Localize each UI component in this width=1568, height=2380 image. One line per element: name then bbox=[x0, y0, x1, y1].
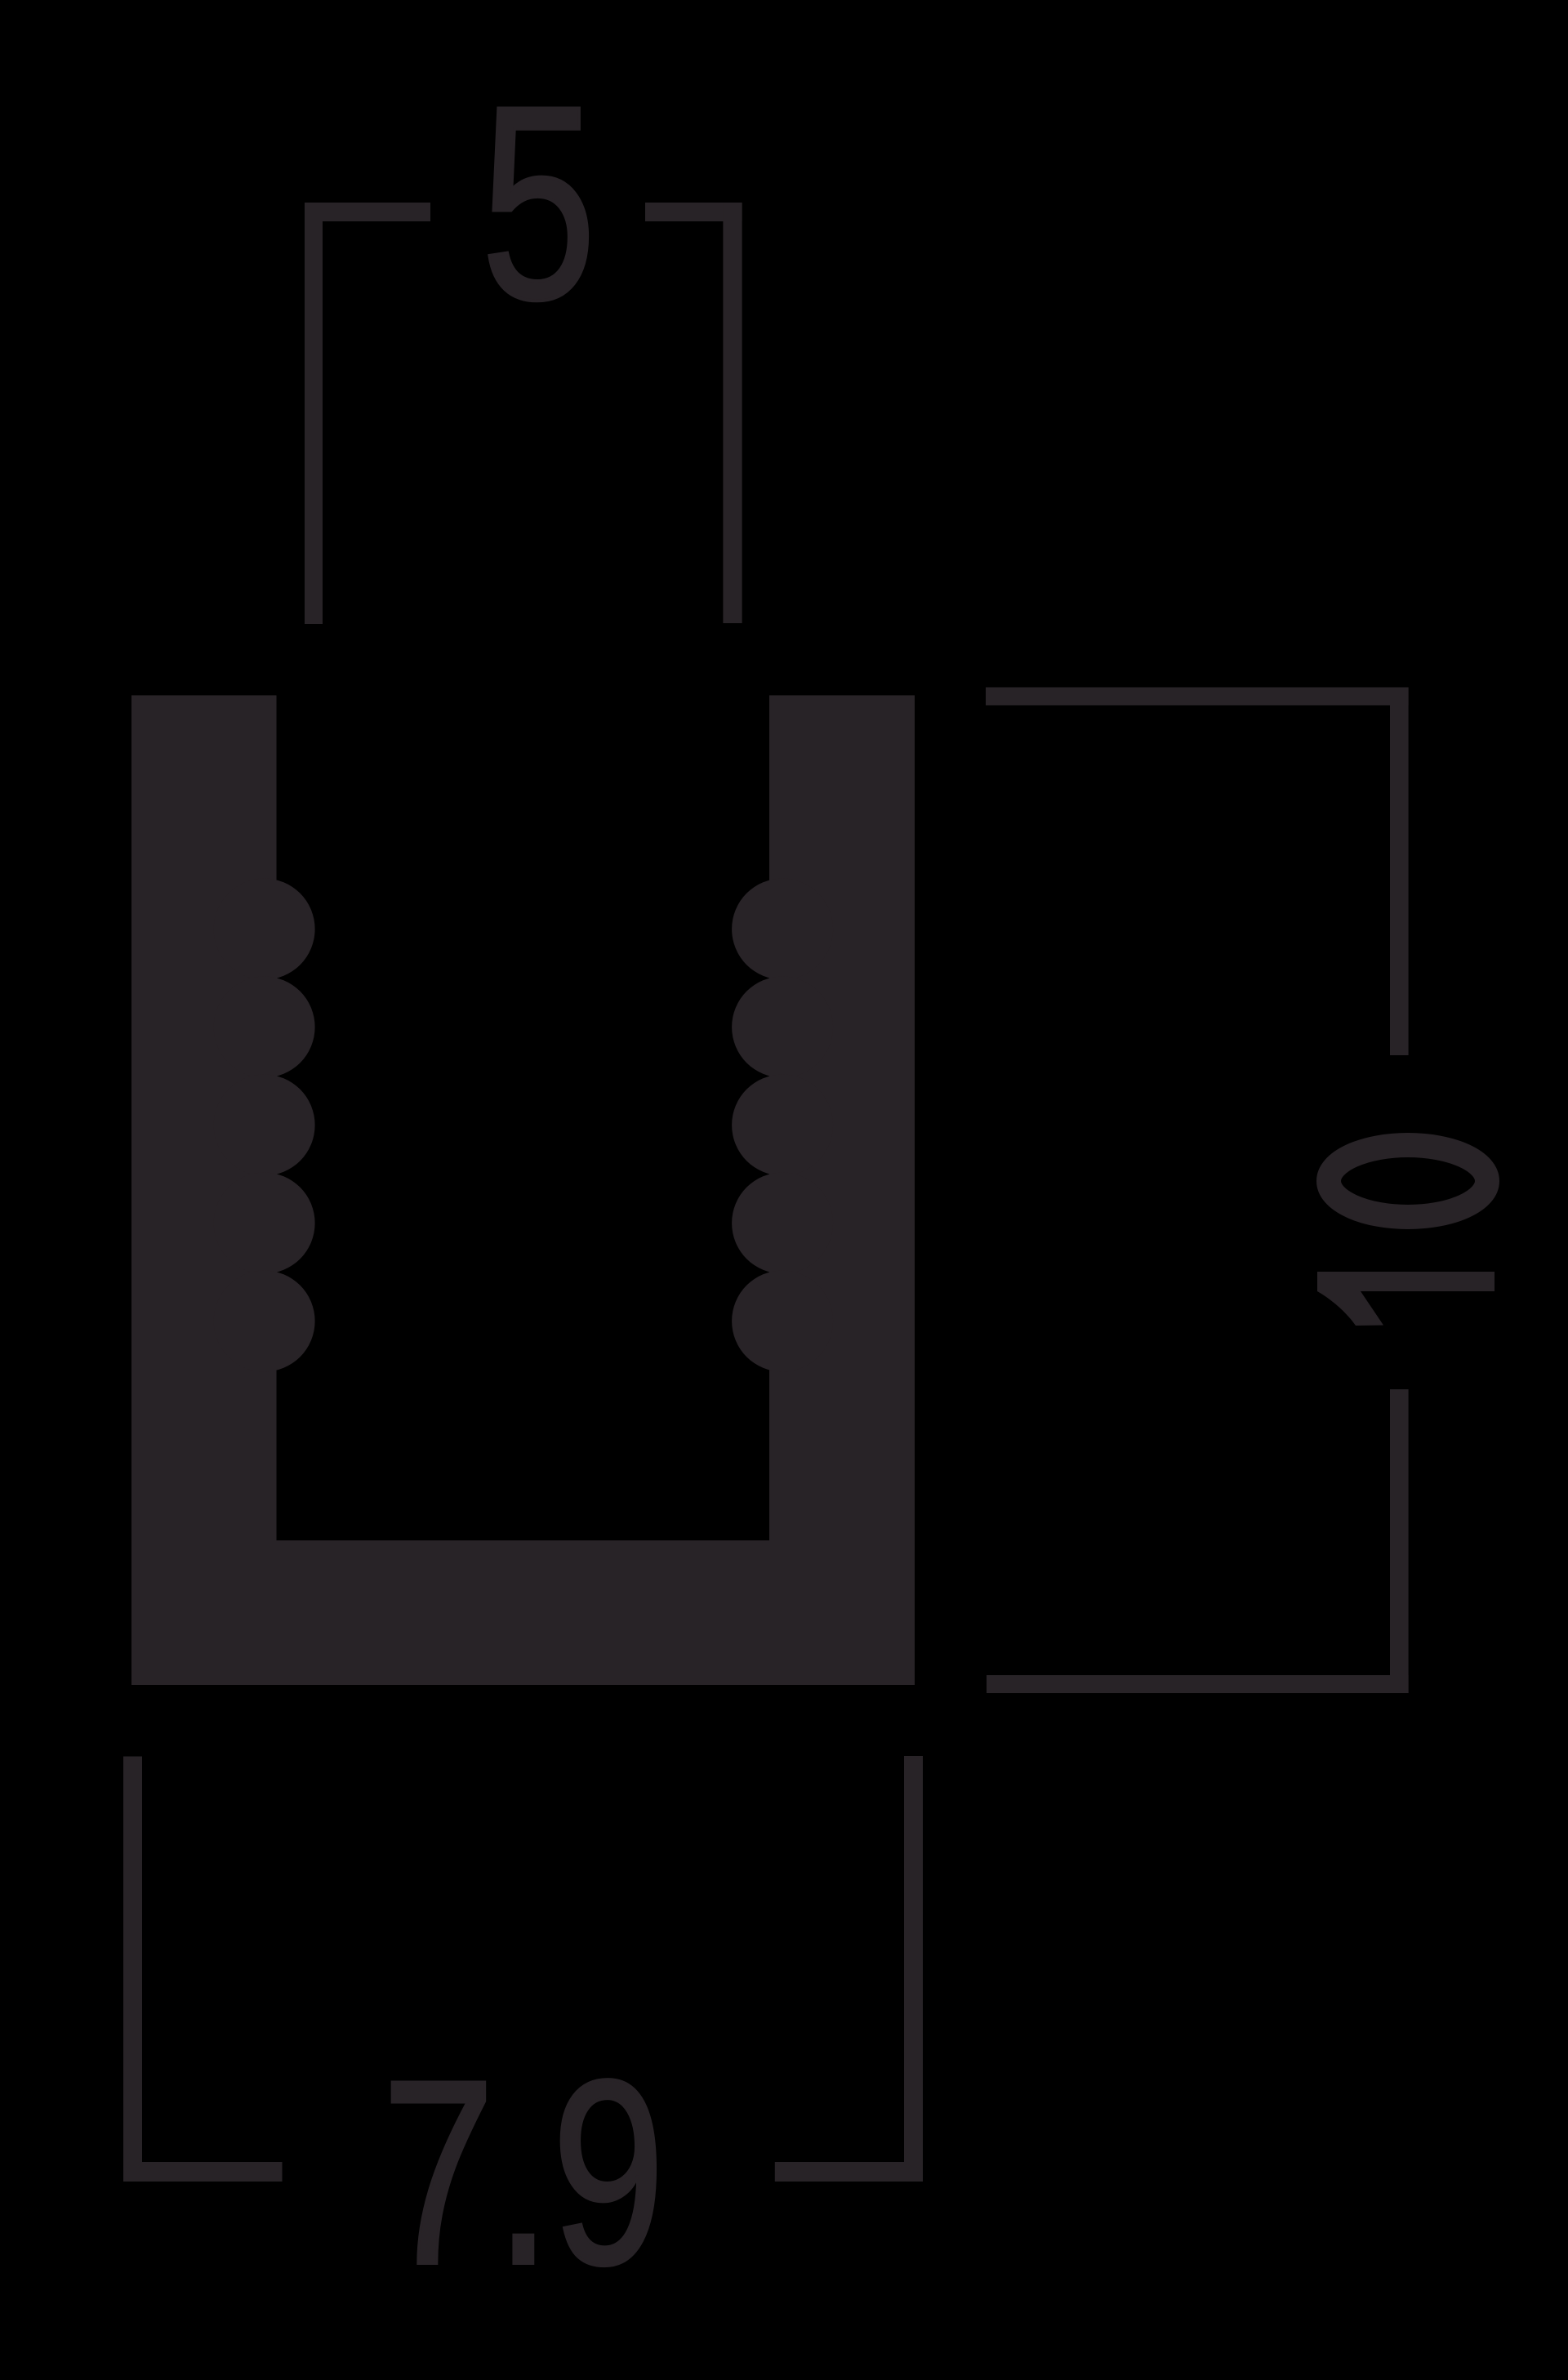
svg-text:7.9: 7.9 bbox=[381, 2026, 665, 2320]
svg-text:5: 5 bbox=[481, 49, 597, 357]
